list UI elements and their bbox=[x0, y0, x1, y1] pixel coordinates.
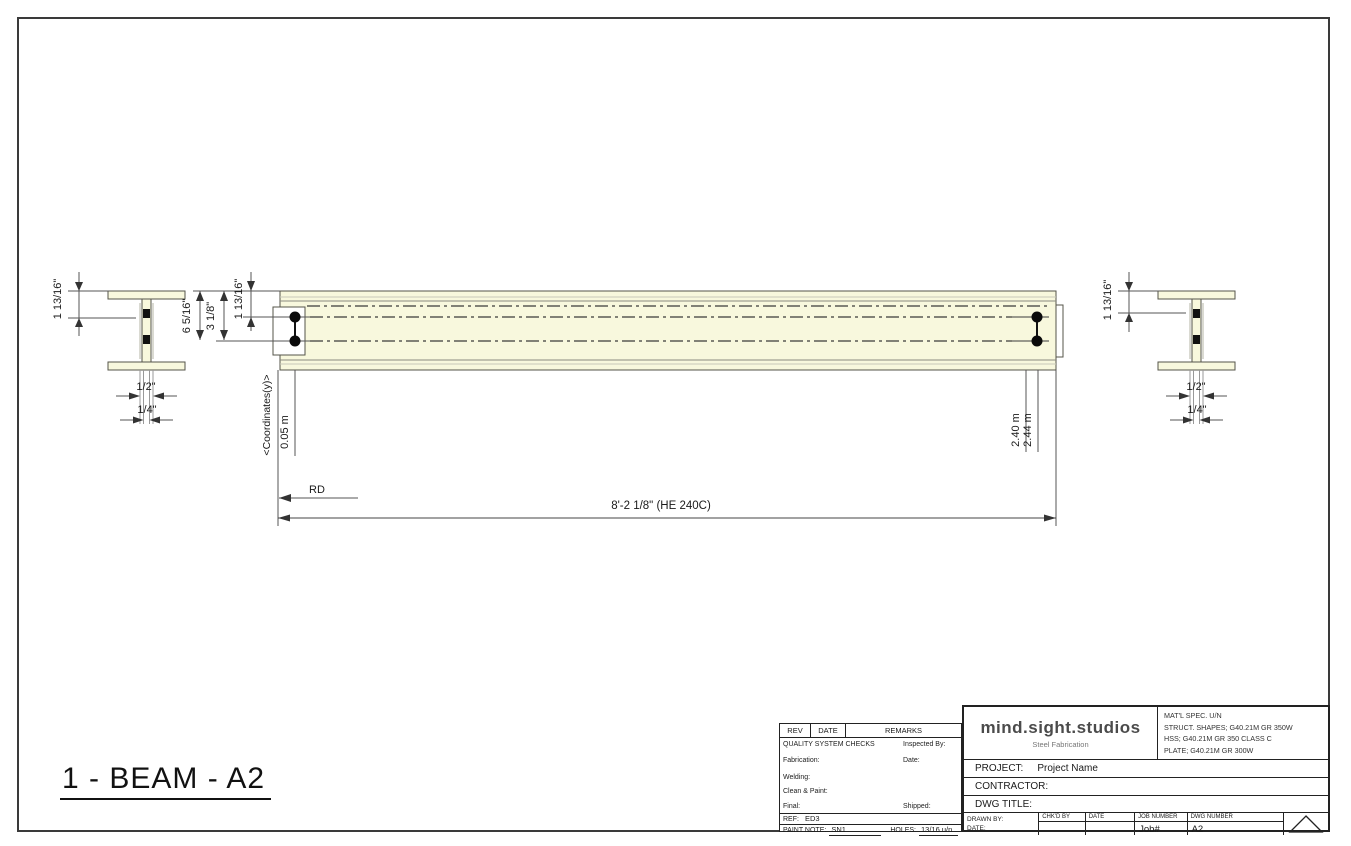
rev-header: REV bbox=[780, 724, 811, 737]
drawing-title: 1 - BEAM - A2 bbox=[60, 762, 271, 800]
holes-value: 13/16 u/n bbox=[919, 825, 958, 836]
dim-depth: 6 5/16" bbox=[181, 299, 193, 334]
chkd-by-cell: CHK'D BY bbox=[1039, 813, 1085, 835]
fabrication-label: Fabrication: bbox=[783, 757, 820, 764]
left-cross-section bbox=[108, 291, 185, 370]
dim-left-section-flange: 1 13/16" bbox=[52, 279, 64, 320]
company-logo: mind.sight.studios bbox=[980, 718, 1140, 738]
revision-triangle-icon bbox=[1287, 814, 1325, 834]
company-cell: mind.sight.studios Steel Fabrication bbox=[964, 707, 1158, 759]
dim-right-section-quarter: 1/4" bbox=[1187, 404, 1206, 416]
project-row: PROJECT: Project Name bbox=[964, 760, 1328, 778]
dim-hole-row1: 1 13/16" bbox=[233, 279, 245, 320]
project-label: PROJECT: bbox=[975, 763, 1023, 774]
beam-body bbox=[280, 291, 1056, 370]
bolt-hole bbox=[1032, 336, 1043, 347]
left-section-top-flange bbox=[108, 291, 185, 299]
right-section-web bbox=[1192, 299, 1201, 362]
dwg-number-cell: DWG NUMBER A2 bbox=[1188, 813, 1284, 835]
contractor-row: CONTRACTOR: bbox=[964, 778, 1328, 796]
drawing-sheet: 1 13/16" 1/2" 1/4" bbox=[0, 0, 1351, 846]
dwg-number-value: A2 bbox=[1188, 822, 1283, 835]
rd-label: RD bbox=[309, 484, 325, 496]
job-number-value: Job# bbox=[1135, 822, 1186, 835]
ref-label: REF: bbox=[783, 816, 799, 823]
arrowhead bbox=[75, 318, 83, 327]
right-section-bottom-flange bbox=[1158, 362, 1235, 370]
date-header: DATE bbox=[811, 724, 846, 737]
matl-spec-line1: MAT'L SPEC. U/N bbox=[1164, 710, 1328, 722]
coord-start-label: 0.05 m bbox=[279, 415, 291, 449]
job-number-label: JOB NUMBER bbox=[1135, 813, 1186, 822]
matl-spec-line2: STRUCT. SHAPES; G40.21M GR 350W bbox=[1164, 722, 1328, 734]
quality-title: QUALITY SYSTEM CHECKS bbox=[783, 741, 875, 748]
left-connection-plate bbox=[273, 307, 305, 355]
dim-right-section-half: 1/2" bbox=[1186, 381, 1205, 393]
final-label: Final: bbox=[783, 803, 800, 810]
drawn-by-cell: DRAWN BY: DATE: bbox=[964, 813, 1039, 835]
coord-end-label: 2.44 m bbox=[1022, 413, 1034, 447]
web-hole-mark bbox=[1193, 309, 1200, 318]
dwg-number-label: DWG NUMBER bbox=[1188, 813, 1283, 822]
drawn-by-label: DRAWN BY: bbox=[967, 815, 1038, 824]
drawn-date-label: DATE: bbox=[967, 824, 1038, 833]
revision-triangle-cell bbox=[1284, 813, 1329, 835]
web-hole-mark bbox=[143, 309, 150, 318]
welding-label: Welding: bbox=[783, 774, 810, 781]
job-number-cell: JOB NUMBER Job# bbox=[1135, 813, 1187, 835]
dim-left-section-half: 1/2" bbox=[136, 381, 155, 393]
chkd-by-label: CHK'D BY bbox=[1039, 813, 1084, 822]
bolt-hole bbox=[290, 336, 301, 347]
overall-length-label: 8'-2 1/8" (HE 240C) bbox=[611, 500, 711, 512]
arrowhead bbox=[75, 282, 83, 291]
dim-left-section-quarter: 1/4" bbox=[137, 404, 156, 416]
paint-note-label: PAINT NOTE: bbox=[783, 827, 826, 834]
clean-paint-label: Clean & Paint: bbox=[783, 788, 828, 795]
title-block: mind.sight.studios Steel Fabrication MAT… bbox=[962, 705, 1330, 832]
web-hole-mark bbox=[1193, 335, 1200, 344]
beam-elevation bbox=[216, 291, 1063, 370]
project-value: Project Name bbox=[1037, 763, 1098, 774]
web-hole-mark bbox=[143, 335, 150, 344]
revision-header-row: REV DATE REMARKS bbox=[780, 724, 961, 738]
company-tagline: Steel Fabrication bbox=[1032, 740, 1088, 749]
bolt-hole bbox=[1032, 312, 1043, 323]
quality-block: REV DATE REMARKS QUALITY SYSTEM CHECKS I… bbox=[779, 723, 962, 832]
inspected-by-label: Inspected By: bbox=[903, 741, 945, 748]
overall-length-dim bbox=[278, 515, 1056, 522]
remarks-header: REMARKS bbox=[846, 724, 961, 737]
date-label: Date: bbox=[903, 757, 920, 764]
holes-label: HOLES: bbox=[890, 827, 916, 834]
dwg-title-row: DWG TITLE: bbox=[964, 796, 1328, 813]
coord-hole-right-label: 2.40 m bbox=[1010, 413, 1022, 447]
title-block-footer: DRAWN BY: DATE: CHK'D BY DATE JOB NUMBER… bbox=[964, 813, 1328, 835]
check-date-label: DATE bbox=[1086, 813, 1134, 822]
arrowhead bbox=[278, 515, 290, 522]
ref-row: REF: ED3 bbox=[780, 813, 961, 824]
title-block-top: mind.sight.studios Steel Fabrication MAT… bbox=[964, 707, 1328, 760]
quality-checks-area: QUALITY SYSTEM CHECKS Inspected By: Fabr… bbox=[780, 738, 961, 813]
contractor-label: CONTRACTOR: bbox=[975, 781, 1048, 792]
arrowhead bbox=[279, 494, 291, 502]
check-date-cell: DATE bbox=[1086, 813, 1135, 835]
right-section-top-flange bbox=[1158, 291, 1235, 299]
paint-note-row: PAINT NOTE: SN1 HOLES: 13/16 u/n bbox=[780, 824, 961, 836]
arrowhead bbox=[1044, 515, 1056, 522]
dim-hole-row2: 3 1/8" bbox=[205, 302, 217, 330]
dim-right-section-flange: 1 13/16" bbox=[1102, 280, 1114, 321]
left-section-bottom-flange bbox=[108, 362, 185, 370]
right-cross-section bbox=[1158, 291, 1235, 370]
ref-value: ED3 bbox=[803, 814, 947, 825]
paint-note-value: SN1 bbox=[829, 825, 881, 836]
dwg-title-label: DWG TITLE: bbox=[975, 799, 1032, 810]
matl-spec-line4: PLATE; G40.21M GR 300W bbox=[1164, 745, 1328, 757]
bolt-hole bbox=[290, 312, 301, 323]
matl-spec-line3: HSS; G40.21M GR 350 CLASS C bbox=[1164, 733, 1328, 745]
shipped-label: Shipped: bbox=[903, 803, 931, 810]
left-section-web bbox=[142, 299, 151, 362]
material-spec-cell: MAT'L SPEC. U/N STRUCT. SHAPES; G40.21M … bbox=[1158, 707, 1328, 759]
coordinates-axis-label: <Coordinates(y)> bbox=[261, 374, 273, 455]
